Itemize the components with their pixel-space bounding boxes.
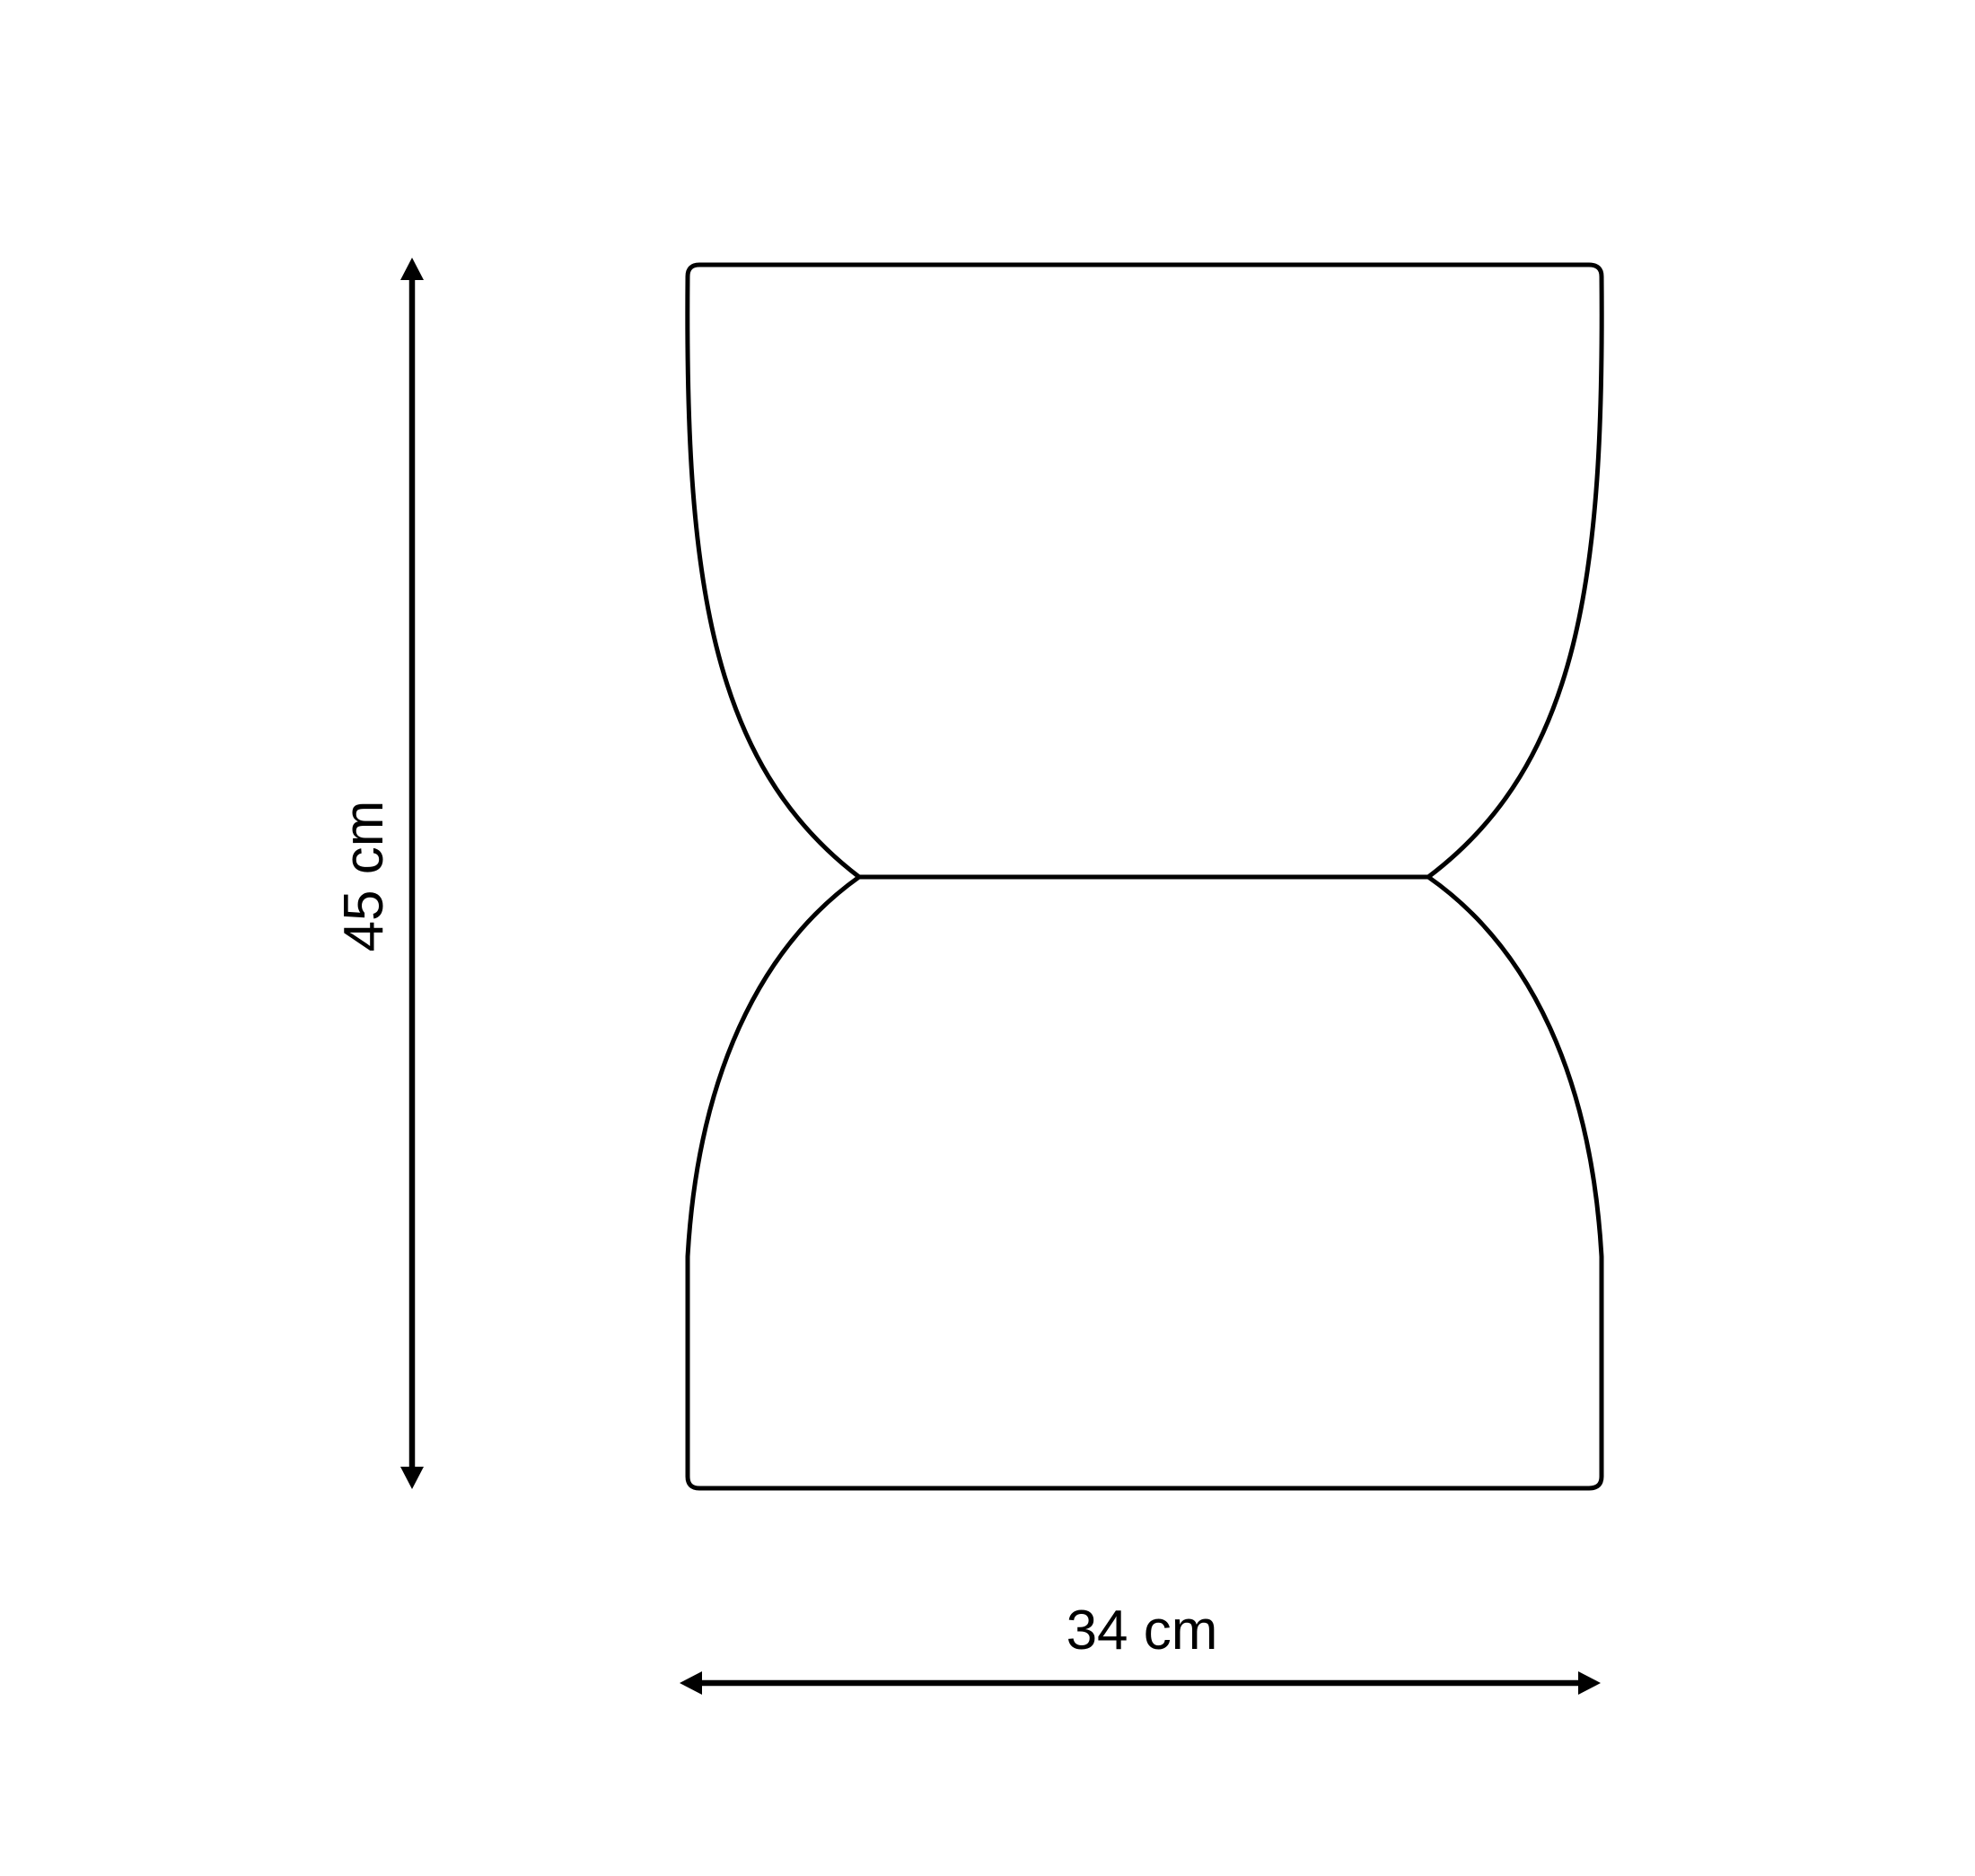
arrow-down-icon — [400, 1467, 424, 1489]
stool-bottom-section — [688, 877, 1602, 1488]
dimension-diagram: 45 cm 34 cm — [0, 0, 1975, 1876]
stool-dimension-drawing: 45 cm 34 cm — [0, 0, 1975, 1876]
height-dimension: 45 cm — [333, 258, 424, 1489]
stool-outline — [688, 265, 1602, 1488]
width-dimension: 34 cm — [680, 1600, 1601, 1695]
width-label: 34 cm — [1066, 1600, 1218, 1661]
height-label: 45 cm — [333, 801, 395, 952]
stool-top-section — [688, 265, 1602, 877]
arrow-up-icon — [400, 258, 424, 280]
arrow-right-icon — [1578, 1671, 1601, 1695]
arrow-left-icon — [680, 1671, 702, 1695]
